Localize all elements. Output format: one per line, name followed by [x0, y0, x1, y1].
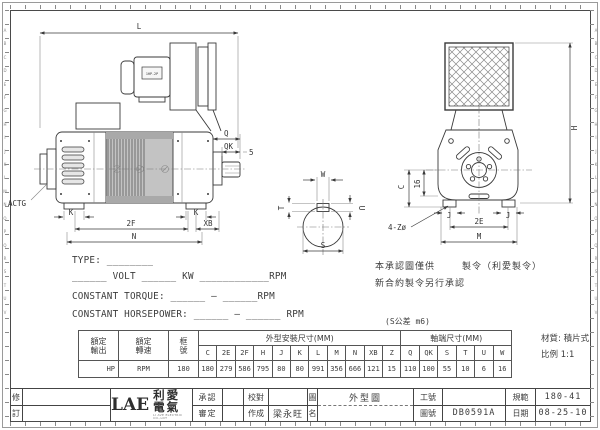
spec-date-label-cell: 規範 日期 [505, 389, 535, 421]
draft-value: 梁永旺 [269, 405, 307, 421]
check-draft-label-cell: 校對 作成 [243, 389, 268, 421]
spec-value: 180-41 [536, 389, 590, 405]
scale-note: 比例 1:1 [541, 348, 574, 360]
work-no-label: 工號 [414, 389, 442, 405]
check-label: 校對 [244, 389, 268, 405]
spec-power-line: ______ VOLT ______ KW ____________RPM [72, 271, 287, 282]
spec-torque-line: CONSTANT TORQUE: ______ — ______RPM [72, 291, 275, 302]
approve-review-label-cell: 承認 審定 [192, 389, 222, 421]
review-label: 審定 [193, 405, 222, 421]
drawing-sheet: A B C D E F G H I J K L M N O P Q R S T … [0, 0, 600, 430]
dim-label-S: S [321, 241, 326, 250]
drawing-name-cell: 外型圖 [317, 389, 413, 421]
drawing-name-label-bottom: 名 [308, 405, 317, 421]
dim-label-H: H [570, 125, 579, 130]
revision-entry-cell [22, 389, 110, 421]
dim-label-QK: QK [224, 142, 234, 151]
work-drawing-no-label-cell: 工號 圖號 [413, 389, 442, 421]
note-line1-b: 製令（利愛製令） [462, 259, 542, 272]
tolerance-note: (S公差 m6) [385, 316, 505, 327]
dim-label-T: T [277, 205, 286, 210]
dim-label-2E: 2E [474, 217, 484, 226]
col-header-rated-speed: 額定轉速 [119, 331, 169, 361]
check-draft-value-cell: 梁永旺 [268, 389, 307, 421]
date-label: 日期 [506, 405, 535, 421]
note-line2: 新合約製令另行承認 [375, 276, 465, 289]
work-no-value [443, 389, 505, 405]
spec-type-line: TYPE: ________ [72, 255, 153, 266]
dim-label-K-left: K [69, 208, 74, 217]
work-drawing-no-value-cell: DB0591A [442, 389, 505, 421]
company-logo-cell: LAE 利愛電氣 LI AVE ELECTRIC CO.,LDT [110, 389, 192, 421]
spec-label: 規範 [506, 389, 535, 405]
drawing-name-label-cell: 圖 名 [307, 389, 317, 421]
dim-label-5: 5 [249, 148, 254, 157]
dim-label-J-right: J [506, 211, 511, 220]
dim-label-M: M [477, 232, 482, 241]
drawing-no-value: DB0591A [443, 405, 505, 421]
group-header-mounting-dims: 外型安裝尺寸(MM) [199, 331, 401, 346]
dim-label-W: W [321, 170, 326, 179]
dim-label-2F: 2F [126, 219, 136, 228]
note-line1-a: 本承認圖僅供 [375, 259, 435, 272]
title-block: 修 訂 LAE 利愛電氣 LI AVE ELECTRIC CO.,LDT 承認 … [10, 388, 590, 420]
revision-label-top: 修 [10, 389, 22, 405]
approve-review-value-cell [222, 389, 243, 421]
lae-logo: LAE [111, 395, 149, 415]
draft-label: 作成 [244, 405, 268, 421]
col-header-rated-output: 額定輸出 [79, 331, 119, 361]
dim-label-16: 16 [413, 179, 422, 189]
drawing-name: 外型圖 [318, 389, 413, 405]
revision-label-bottom: 訂 [10, 405, 22, 421]
group-header-shaft-dims: 軸端尺寸(MM) [401, 331, 512, 346]
company-name-en: LI AVE ELECTRIC CO.,LDT [153, 414, 192, 420]
approve-label: 承認 [193, 389, 222, 405]
dim-label-L: L [137, 22, 142, 31]
shaft-detail-view: W U T S [277, 170, 366, 255]
side-view: L 1HP-2P [8, 22, 254, 245]
dim-label-4Z: 4-Zø [388, 223, 407, 232]
spec-horsepower-line: CONSTANT HORSEPOWER: ______ — ______ RPM [72, 309, 304, 320]
dimension-table: 額定輸出 額定轉速 框號 外型安裝尺寸(MM) 軸端尺寸(MM) C2E2F H… [78, 330, 512, 378]
dim-label-Q: Q [224, 129, 229, 138]
dim-label-N: N [132, 232, 137, 241]
col-header-frame: 框號 [169, 331, 199, 361]
material-note: 材質: 積片式 [541, 332, 589, 344]
spec-date-value-cell: 180-41 08-25-10 [535, 389, 590, 421]
date-value: 08-25-10 [536, 405, 590, 421]
dim-label-U: U [357, 206, 366, 211]
value-row: HP RPM 180 180279586 7958080 991356666 1… [79, 361, 512, 378]
dim-label-C: C [397, 185, 406, 190]
drawing-no-label: 圖號 [414, 405, 442, 421]
dim-label-XB: XB [203, 219, 213, 228]
revision-label-cell: 修 訂 [10, 389, 22, 421]
actg-label: ACTG [8, 199, 27, 208]
end-view: H [388, 43, 579, 245]
drawing-name-label-top: 圖 [308, 389, 317, 405]
blower-nameplate: 1HP-2P [146, 72, 158, 76]
company-name-cn: 利愛電氣 [153, 390, 192, 413]
dim-label-J-left: J [447, 211, 452, 220]
